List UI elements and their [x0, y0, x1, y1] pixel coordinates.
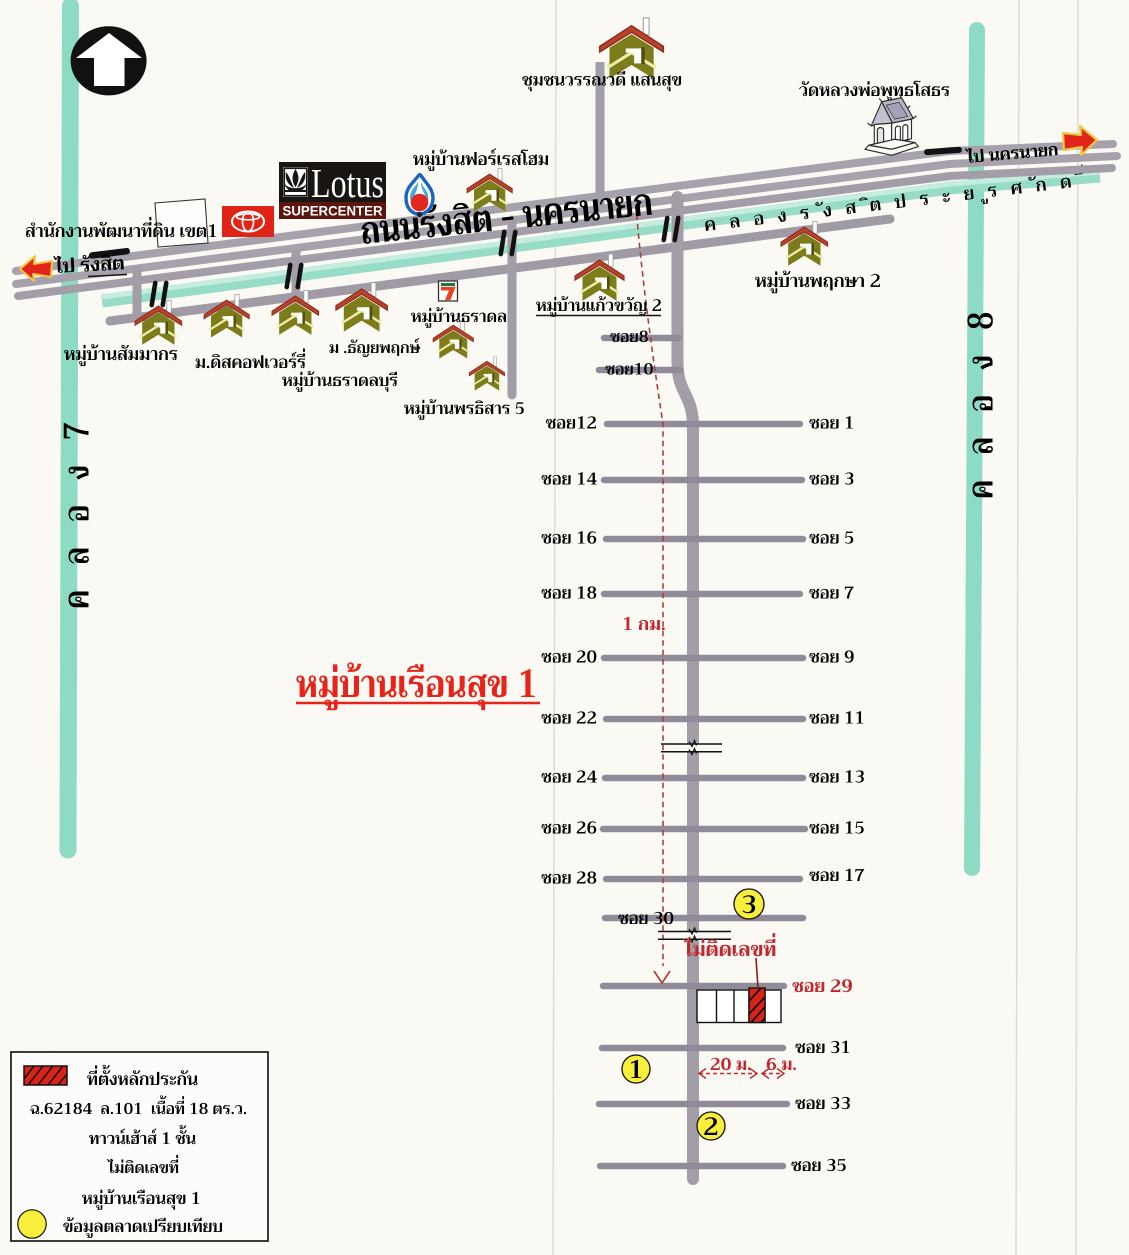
svg-text:Lotus: Lotus — [311, 160, 384, 206]
svg-text:SUPERCENTER: SUPERCENTER — [283, 204, 383, 219]
